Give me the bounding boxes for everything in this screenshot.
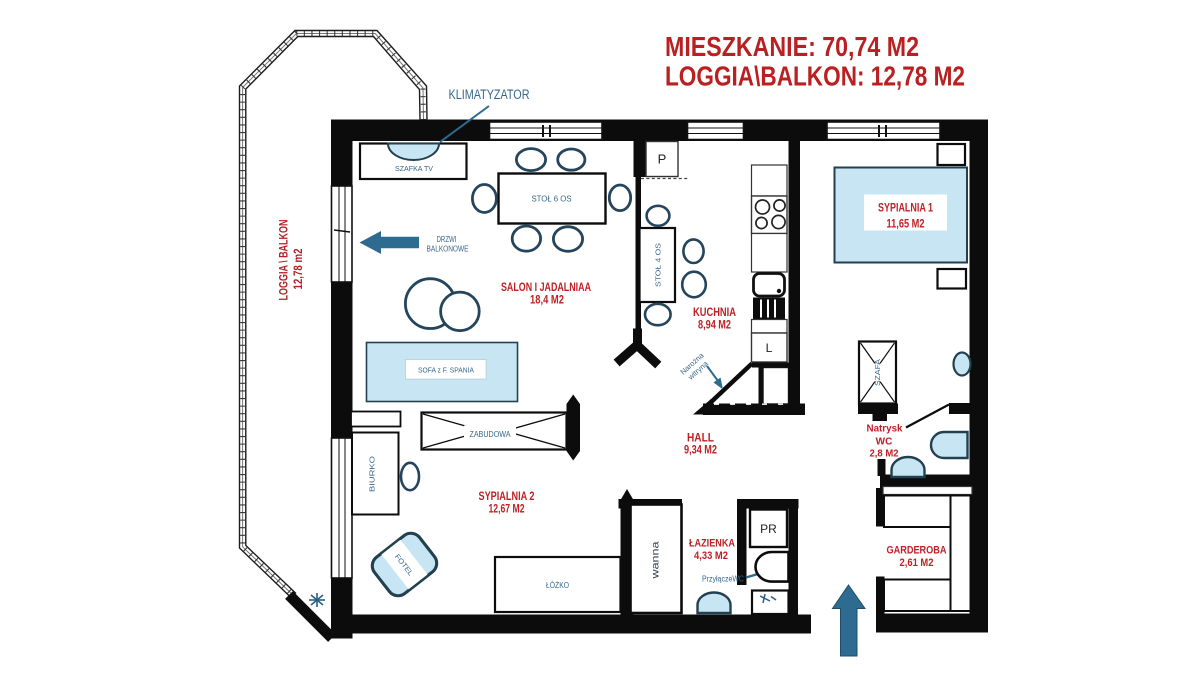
- svg-text:8,94 M2: 8,94 M2: [698, 320, 731, 332]
- svg-text:2,61 M2: 2,61 M2: [900, 557, 934, 569]
- svg-text:SYPIALNIA 1: SYPIALNIA 1: [878, 203, 933, 215]
- svg-text:ZABUDOWA: ZABUDOWA: [470, 430, 511, 439]
- svg-text:P: P: [658, 152, 667, 167]
- svg-text:18,4 M2: 18,4 M2: [530, 293, 564, 307]
- svg-text:SYPIALNIA 2: SYPIALNIA 2: [479, 491, 535, 503]
- svg-text:ŁÓŻKO: ŁÓŻKO: [546, 581, 569, 590]
- svg-text:12,67 M2: 12,67 M2: [489, 504, 525, 516]
- svg-text:9,34 M2: 9,34 M2: [684, 445, 717, 457]
- svg-text:wanna: wanna: [650, 541, 662, 579]
- svg-text:KLIMATYZATOR: KLIMATYZATOR: [449, 87, 530, 102]
- svg-text:SOFA z F. SPANIA: SOFA z F. SPANIA: [418, 366, 474, 375]
- svg-text:WC: WC: [876, 437, 893, 448]
- svg-text:DRZWI: DRZWI: [437, 235, 457, 244]
- svg-text:4,33 M2: 4,33 M2: [694, 550, 728, 562]
- svg-text:ŁAZIENKA: ŁAZIENKA: [689, 538, 735, 550]
- svg-text:LOGGIA \ BALKON: LOGGIA \ BALKON: [279, 220, 291, 301]
- svg-text:LOGGIA\BALKON: 12,78 M2: LOGGIA\BALKON: 12,78 M2: [665, 61, 965, 92]
- svg-text:STOŁ 6 OS: STOŁ 6 OS: [532, 194, 572, 204]
- svg-text:STOŁ 4 OS: STOŁ 4 OS: [654, 243, 663, 287]
- svg-text:12,78 m2: 12,78 m2: [293, 249, 305, 290]
- svg-text:2,8 M2: 2,8 M2: [870, 449, 899, 460]
- svg-text:MIESZKANIE: 70,74 M2: MIESZKANIE: 70,74 M2: [665, 31, 919, 62]
- svg-text:HALL: HALL: [687, 433, 714, 445]
- svg-text:PR: PR: [760, 522, 777, 536]
- svg-text:SZAFA: SZAFA: [875, 359, 882, 386]
- svg-text:11,65 M2: 11,65 M2: [887, 219, 925, 231]
- svg-text:L: L: [766, 341, 773, 355]
- svg-text:BALKONOWE: BALKONOWE: [427, 245, 469, 254]
- svg-text:SZAFKA TV: SZAFKA TV: [395, 164, 433, 173]
- svg-text:GARDEROBA: GARDEROBA: [887, 545, 947, 557]
- svg-text:KUCHNIA: KUCHNIA: [693, 307, 736, 319]
- svg-text:PrzyłączeWC: PrzyłączeWC: [702, 575, 744, 584]
- svg-text:BIURKO: BIURKO: [368, 456, 377, 492]
- svg-text:Natrysk: Natrysk: [867, 424, 903, 435]
